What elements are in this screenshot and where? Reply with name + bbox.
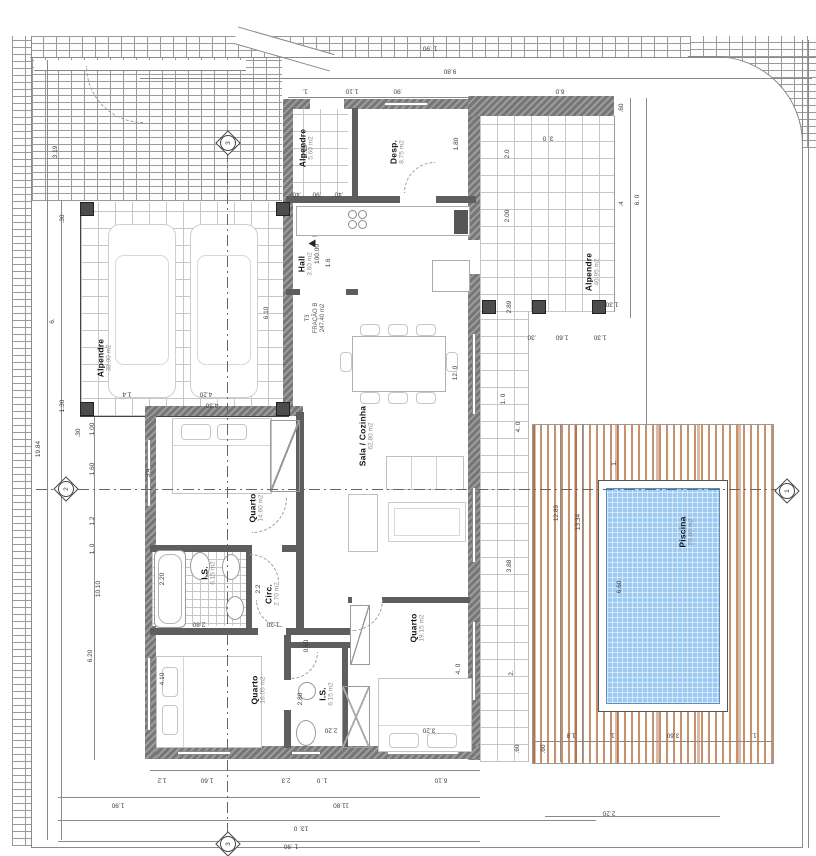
room-label-pantry: Desp. 8.75 m2 (389, 140, 406, 164)
dim-label: 13.34 (576, 514, 583, 530)
dim-label: .30 (76, 428, 83, 437)
dim-label: 2.20 (160, 573, 167, 586)
dim-label: .4 (619, 201, 626, 206)
carport-post (276, 202, 290, 216)
dim-label: 2.3 (281, 776, 290, 783)
dim-label: 6.20 (88, 650, 95, 663)
dim-label: 1 .90 (423, 44, 437, 51)
dim-label: 3.88 (507, 560, 514, 573)
car-roof (197, 255, 251, 365)
dim-label: 1.2 (157, 776, 166, 783)
dim-label: .90 (312, 190, 321, 197)
room-name: Desp. (389, 140, 399, 164)
dim-label: .60 (619, 103, 626, 112)
room-name: Quarto (250, 675, 260, 704)
dining-chair (416, 324, 436, 336)
toilet (222, 554, 240, 580)
room-area: 23.80 m2 (688, 518, 695, 545)
dim-label: 6. (50, 318, 57, 323)
room-label-bedroom-1: Quarto 14.60 m2 (248, 493, 265, 522)
dim-label: .60 (515, 744, 522, 753)
dining-chair (360, 324, 380, 336)
room-label-hall: Hall 3.60 m2 (297, 252, 314, 276)
room-area: 14.60 m2 (258, 494, 265, 521)
dim-line (140, 78, 812, 79)
dim-line (532, 741, 772, 742)
porch-post (592, 300, 606, 314)
window (472, 488, 476, 562)
bed (378, 678, 472, 752)
unit-area: 247.40 m2 (320, 304, 328, 332)
entry-porch-floor (286, 108, 348, 200)
window (147, 658, 151, 730)
room-name: I.S. (318, 687, 328, 701)
car (190, 224, 258, 398)
dim-label: 2.20 (603, 809, 616, 816)
bathtub (154, 550, 186, 628)
dining-chair (416, 392, 436, 404)
bidet (226, 596, 244, 620)
window (472, 622, 476, 700)
dim-label: 1. (609, 731, 614, 738)
door-gap (300, 289, 346, 295)
dim-line (58, 820, 596, 821)
boundary-line (802, 40, 803, 848)
room-name: Hall (297, 256, 307, 272)
door-gap (252, 545, 282, 552)
section-marker-number: 3 (216, 832, 240, 856)
unit-fraction: FRAÇÃO B (312, 303, 320, 334)
room-name: Circ. (264, 584, 274, 604)
window (385, 102, 427, 106)
dim-label: 4.10 (160, 673, 167, 686)
dim-label: 1.20 (267, 620, 280, 627)
dim-label: 1. 0 (501, 394, 508, 405)
dim-label: .40 (334, 190, 343, 197)
room-label-bedroom-3: Quarto 19.15 m2 (409, 613, 426, 642)
room-area: 6.15 m2 (210, 561, 217, 585)
stove-burner (358, 220, 367, 229)
dim-label: 3.19 (303, 145, 310, 158)
porch-post (532, 300, 546, 314)
dim-line (58, 841, 480, 842)
sidewalk-paving-left (12, 36, 32, 846)
room-label-living-kitchen: Sala / Cozinha 62.80 m2 (358, 406, 375, 466)
window (178, 751, 230, 755)
room-area: 40.95 m2 (594, 258, 601, 285)
dim-label: 3.4 (146, 468, 153, 477)
level-marker-value: 100.00 (315, 244, 322, 264)
room-area: 16.05 m2 (260, 676, 267, 703)
carport-post (80, 402, 94, 416)
dim-label: 4.30 (206, 401, 219, 408)
dining-chair (360, 392, 380, 404)
dim-label: 1.60 (556, 333, 569, 340)
dim-label: 3.20 (423, 726, 436, 733)
stove-burner (348, 210, 357, 219)
dim-line (47, 60, 48, 840)
dim-label: 1 .90 (284, 842, 298, 849)
toilet (296, 720, 316, 746)
room-area: 38.00 m2 (106, 344, 113, 371)
dim-label: 1.6 (326, 258, 333, 267)
section-marker-number: 3 (216, 131, 240, 155)
dim-label: 6. 0 (635, 195, 642, 206)
dim-label: 1.60 (90, 463, 97, 476)
sofa (386, 456, 464, 490)
pool-water (606, 488, 720, 704)
section-centerline-horizontal (36, 489, 796, 490)
dim-label: 2.80 (193, 620, 206, 627)
dim-label: 3.60 (667, 731, 680, 738)
side-walkway-floor (480, 312, 529, 762)
boundary-line (31, 847, 803, 848)
wardrobe (270, 420, 300, 492)
dim-label: 9.80 (444, 67, 457, 74)
room-area: 3.60 m2 (307, 252, 314, 276)
boundary-line (30, 57, 816, 58)
door-gap (400, 196, 436, 203)
kitchen-sink-unit (454, 210, 468, 234)
room-name: Piscina (678, 516, 688, 547)
dim-label: 1.60 (201, 776, 214, 783)
dim-label: 6.10 (264, 307, 271, 320)
room-name: Alpendre (96, 339, 106, 377)
room-label-porch-rear: Alpendre 40.95 m2 (584, 253, 601, 291)
dining-chair (340, 352, 352, 372)
bed (156, 656, 262, 748)
dim-label: 4.20 (200, 390, 213, 397)
dim-label: .60 (541, 744, 548, 753)
window (472, 334, 476, 414)
dim-label: 2.0 (505, 149, 512, 158)
dim-label: .40 (292, 190, 301, 197)
boundary-line (808, 40, 809, 848)
room-area: 19.15 m2 (419, 614, 426, 641)
dim-label: 4. 0 (456, 664, 463, 675)
dim-label: 1. 0 (90, 544, 97, 555)
dim-label: 12.89 (554, 505, 561, 521)
room-label-bedroom-2: Quarto 16.05 m2 (250, 675, 267, 704)
door-swing (250, 554, 279, 583)
room-name: Sala / Cozinha (358, 406, 368, 466)
dim-label: 3.19 (53, 146, 60, 159)
dim-label: .30 (60, 214, 67, 223)
dim-label: 12. 0 (453, 366, 460, 380)
dim-label: .30 (527, 333, 536, 340)
dim-label: 1.30 (606, 300, 619, 307)
dim-label: 0.60 (304, 640, 311, 653)
boundary-line (31, 36, 32, 848)
stove-burner (358, 210, 367, 219)
dim-label: 11.80 (333, 801, 349, 808)
room-name: Quarto (409, 613, 419, 642)
room-label-bath-2: I.S. 6.15 m2 (318, 682, 335, 706)
section-marker-number: 2 (54, 477, 78, 501)
room-name: I.S. (200, 566, 210, 580)
kitchen-counter (296, 206, 470, 236)
dim-line (150, 770, 480, 771)
dim-line (582, 424, 583, 762)
room-label-carport: Alpendre 38.00 m2 (96, 339, 113, 377)
dim-label: 1.30 (594, 333, 607, 340)
wall-entry-left (283, 99, 293, 412)
dim-label: 1.10 (346, 87, 359, 94)
unit-code: T3 (305, 314, 313, 321)
dim-label: 1. (302, 87, 307, 94)
floor-plan-sheet: 3 3 2 1 Alpendre 38.00 m2 Alpendre 5.60 … (0, 0, 816, 856)
section-centerline-vertical (227, 130, 228, 854)
shower (342, 686, 370, 748)
dim-label: 2.89 (507, 301, 514, 314)
section-marker-left: 2 (54, 477, 78, 501)
dim-label: 6.0 (555, 87, 564, 94)
wardrobe (350, 605, 370, 665)
dim-label: 3. 0 (543, 134, 554, 141)
dim-label: 1. (751, 731, 756, 738)
dim-label: 1.4 (122, 390, 131, 397)
carport-post (80, 202, 94, 216)
door-swing (404, 162, 435, 193)
dining-table (352, 336, 446, 392)
dim-label: 2.20 (325, 726, 338, 733)
dining-chair (388, 392, 408, 404)
section-marker-right: 1 (775, 479, 799, 503)
dim-label: .90 (393, 87, 402, 94)
dim-line (560, 424, 561, 762)
sidewalk-paving-corner-block (32, 58, 282, 201)
sofa-small (348, 494, 378, 552)
window (292, 751, 320, 755)
carport-post (276, 402, 290, 416)
room-area: 6.15 m2 (328, 682, 335, 706)
dim-label: 1.00 (90, 423, 97, 436)
room-area: 2.70 m2 (274, 582, 281, 606)
bed (172, 418, 272, 494)
room-label-bath-1: I.S. 6.15 m2 (200, 561, 217, 585)
dim-label: 1.80 (454, 138, 461, 151)
dim-label: 4. 0 (516, 422, 523, 433)
dim-line (61, 200, 62, 840)
room-area: 62.80 m2 (368, 422, 375, 449)
room-name: Alpendre (584, 253, 594, 291)
dim-line (545, 816, 720, 817)
room-label-circulation: Circ. 2.70 m2 (264, 582, 281, 606)
dim-label: 2.80 (298, 693, 305, 706)
car (108, 224, 176, 398)
door-swing (291, 652, 318, 679)
section-marker-bottom: 3 (216, 832, 240, 856)
dim-label: 6.10 (435, 776, 448, 783)
door-gap (310, 99, 344, 109)
dim-label: 1. 0 (317, 776, 328, 783)
dim-label: 2. (509, 670, 516, 675)
room-label-pool: Piscina 23.80 m2 (678, 516, 695, 547)
dim-label: 2.2 (256, 584, 263, 593)
dim-label: 1.30 (60, 400, 67, 413)
dim-label: 2.00 (505, 210, 512, 223)
dim-label: 1.8 (566, 731, 575, 738)
door-gap (258, 628, 286, 635)
dim-label: 1.90 (112, 801, 125, 808)
car-roof (115, 255, 169, 365)
dim-label: 6.60 (617, 581, 624, 594)
kitchen-island (432, 260, 470, 292)
dim-label: 10.10 (96, 581, 103, 597)
partition-porch-pantry (352, 108, 358, 200)
porch-post (482, 300, 496, 314)
dim-label: 1.2 (90, 516, 97, 525)
section-marker-top: 3 (216, 131, 240, 155)
section-marker-number: 1 (775, 479, 799, 503)
room-name: Quarto (248, 493, 258, 522)
door-gap (284, 680, 291, 710)
room-area: 8.75 m2 (399, 140, 406, 164)
dim-line (58, 797, 480, 798)
dim-label: 1. (612, 460, 619, 465)
rug (388, 502, 466, 542)
partition-bed2-top (150, 628, 350, 635)
stove-burner (348, 220, 357, 229)
unit-fraction-block: T3 FRAÇÃO B 247.40 m2 (305, 303, 328, 334)
dining-chair (388, 324, 408, 336)
dim-line (630, 98, 631, 318)
dim-label: 19.84 (36, 441, 43, 457)
dim-label: 13. 0 (294, 824, 308, 831)
wall-porch-beam (468, 96, 614, 116)
